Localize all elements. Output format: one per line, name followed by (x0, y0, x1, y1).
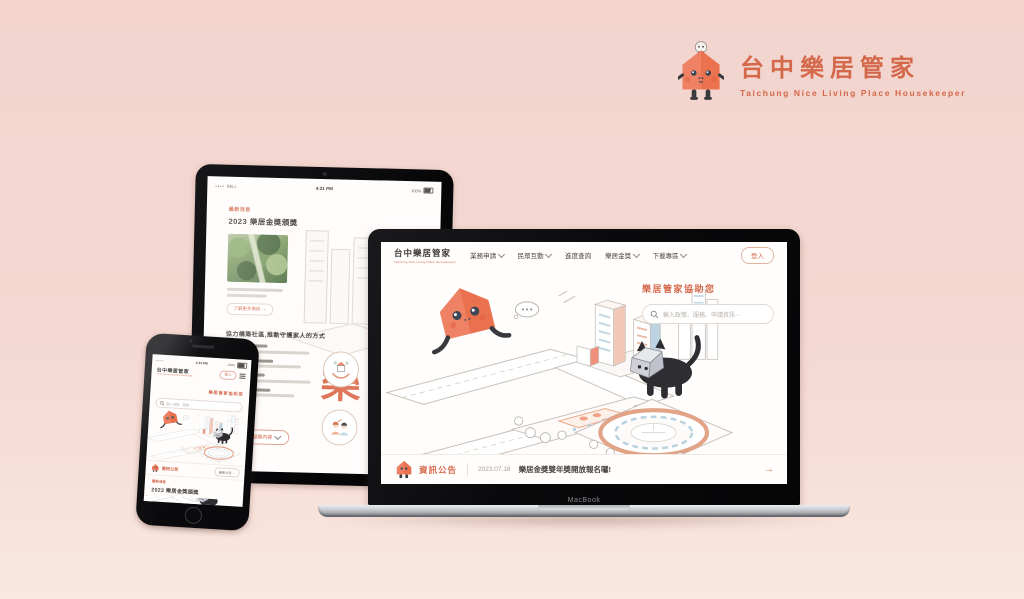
phone-home-button[interactable] (184, 506, 202, 524)
brand-mascot-icon (678, 40, 724, 106)
mockup-scene: 台中樂居管家 Taichung Nice Living Place Housek… (0, 0, 1024, 599)
chevron-down-icon (633, 250, 640, 257)
site-logo-subtitle: Taichung Nice Living Place Housekeeper (394, 260, 456, 264)
tablet-camera (323, 172, 327, 176)
laptop-brand-label: MacBook (368, 497, 800, 504)
article-photo[interactable] (227, 234, 288, 283)
search-placeholder: 輸入政策、服務、申請資訊⋯ (663, 310, 741, 319)
announcement-label: 資訊公告 (419, 464, 457, 476)
site-logo[interactable]: 台中樂居管家 Taichung Nice Living Place Housek… (394, 247, 456, 264)
login-button[interactable]: 登入 (219, 370, 237, 380)
login-button[interactable]: 登入 (741, 247, 774, 264)
city-illustration (146, 408, 248, 466)
battery-icon (237, 362, 247, 369)
search-input[interactable]: 輸入政策、服務、申請資訊⋯ (642, 304, 774, 324)
site-header: 台中樂居管家 Taichung Nice Living Place Housek… (381, 242, 787, 268)
house-mascot-icon (394, 460, 414, 479)
site-logo-title: 台中樂居管家 (394, 247, 456, 259)
community-care-icon (323, 351, 360, 388)
assist-title: 樂居管家協助您 (642, 282, 774, 295)
announcement-headline: 樂居金獎雙年獎開放報名囉! (519, 464, 612, 475)
battery-icon (423, 187, 433, 193)
laptop-screen: 台中樂居管家 Taichung Nice Living Place Housek… (381, 242, 787, 484)
brand-tagline: Taichung Nice Living Place Housekeeper (740, 88, 966, 98)
nav-item-award[interactable]: 樂居金獎 (605, 250, 639, 260)
menu-icon[interactable] (239, 374, 245, 379)
nav-item-download[interactable]: 下載專區 (653, 250, 687, 260)
nav-item-progress[interactable]: 進度查詢 (565, 250, 591, 260)
laptop-device: 台中樂居管家 Taichung Nice Living Place Housek… (368, 229, 800, 506)
chevron-down-icon (680, 250, 687, 257)
assist-title: 樂居管家協助您 (208, 390, 243, 397)
latest-announcement-link[interactable]: 最新公告 → (215, 467, 240, 477)
chevron-down-icon (545, 250, 552, 257)
article-caption-lines (227, 288, 285, 298)
arrow-right-icon[interactable]: → (764, 464, 774, 475)
laptop-lid-notch (538, 505, 630, 510)
brand-title: 台中樂居管家 (740, 48, 966, 83)
search-icon (650, 310, 659, 319)
phone-camera (189, 339, 192, 342)
phone-speaker (192, 344, 214, 348)
section-icons (321, 351, 359, 446)
divider (467, 463, 468, 477)
nav-item-apply[interactable]: 業務申請 (470, 250, 504, 260)
laptop-base (318, 505, 850, 517)
search-icon (160, 400, 165, 405)
chevron-down-icon (498, 250, 505, 257)
phone-device: 4:21 PM 100% 台中樂居管家 Taichung Nice Living… (135, 333, 260, 532)
announcement-date: 2023.07.18 (478, 466, 511, 473)
brand-logo: 台中樂居管家 Taichung Nice Living Place Housek… (678, 40, 966, 106)
main-nav: 業務申請 民眾互動 進度查詢 樂居金獎 下載專區 (470, 250, 686, 260)
nav-item-interact[interactable]: 民眾互動 (518, 250, 552, 260)
search-placeholder: 輸入政策、服務⋯ (167, 401, 193, 408)
house-mascot-icon (150, 463, 160, 473)
announcement-bar[interactable]: 資訊公告 2023.07.18 樂居金獎雙年獎開放報名囉! → (381, 454, 787, 484)
assist-panel: 樂居管家協助您 輸入政策、服務、申請資訊⋯ (642, 282, 774, 324)
people-highfive-icon (321, 409, 358, 446)
article-more-link[interactable]: 了解更多資訊 → (226, 303, 273, 316)
announcement-label: 資訊公告 (162, 465, 179, 472)
chevron-down-icon (274, 433, 281, 440)
phone-screen: 4:21 PM 100% 台中樂居管家 Taichung Nice Living… (144, 354, 252, 507)
